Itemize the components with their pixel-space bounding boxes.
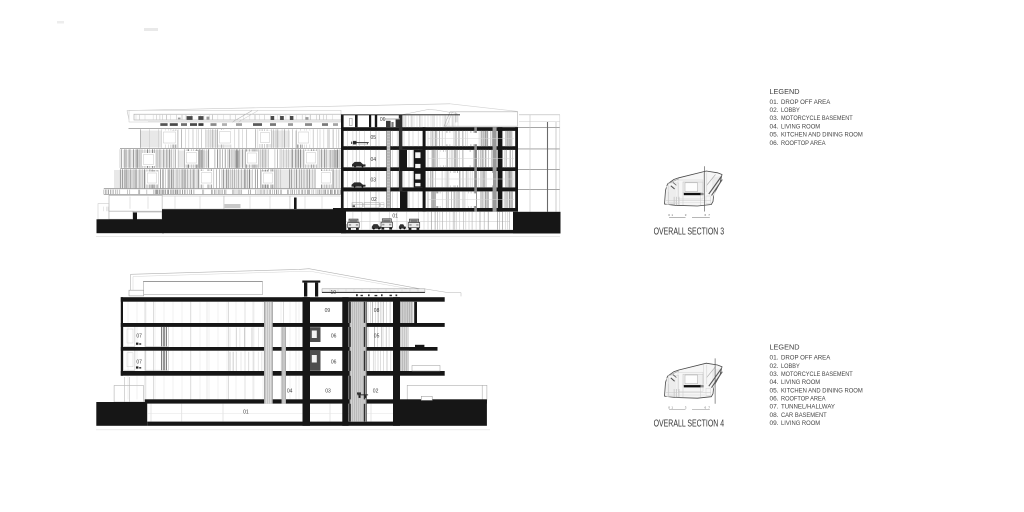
svg-text:OVERALL SECTION 4: OVERALL SECTION 4	[654, 419, 725, 430]
svg-text:03: 03	[325, 388, 331, 394]
svg-text:01.: 01.	[770, 99, 779, 106]
svg-text:02.: 02.	[770, 363, 779, 370]
svg-text:06: 06	[331, 333, 337, 339]
svg-text:ROOFTOP AREA: ROOFTOP AREA	[781, 395, 826, 402]
svg-text:CAR BASEMENT: CAR BASEMENT	[781, 412, 827, 419]
svg-text:08: 08	[374, 308, 380, 314]
svg-text:OVERALL SECTION 3: OVERALL SECTION 3	[654, 227, 725, 238]
svg-text:MOTORCYCLE BASEMENT: MOTORCYCLE BASEMENT	[781, 115, 853, 122]
svg-text:LEGEND: LEGEND	[770, 343, 800, 352]
svg-text:01: 01	[243, 409, 249, 415]
svg-text:DROP OFF AREA: DROP OFF AREA	[781, 99, 831, 106]
svg-text:04: 04	[371, 157, 377, 163]
svg-text:03.: 03.	[770, 371, 779, 378]
svg-text:05: 05	[371, 135, 377, 141]
svg-text:02.: 02.	[770, 107, 779, 114]
svg-text:LIVING ROOM: LIVING ROOM	[781, 123, 820, 130]
svg-text:05.: 05.	[770, 387, 779, 394]
svg-text:06: 06	[331, 360, 337, 366]
svg-text:09.: 09.	[770, 420, 779, 427]
svg-text:ROOFTOP AREA: ROOFTOP AREA	[781, 140, 826, 147]
svg-text:10: 10	[331, 290, 337, 296]
svg-text:LIVING ROOM: LIVING ROOM	[781, 420, 820, 427]
svg-text:KITCHEN AND DINING ROOM: KITCHEN AND DINING ROOM	[781, 132, 863, 139]
svg-text:03: 03	[371, 178, 377, 184]
svg-text:03.: 03.	[770, 115, 779, 122]
svg-text:TUNNEL/HALLWAY: TUNNEL/HALLWAY	[781, 404, 836, 411]
svg-text:LOBBY: LOBBY	[781, 363, 800, 370]
svg-text:06.: 06.	[770, 140, 779, 147]
svg-text:KITCHEN AND DINING ROOM: KITCHEN AND DINING ROOM	[781, 387, 863, 394]
svg-text:MOTORCYCLE BASEMENT: MOTORCYCLE BASEMENT	[781, 371, 853, 378]
svg-text:LEGEND: LEGEND	[770, 87, 800, 96]
svg-text:04.: 04.	[770, 379, 779, 386]
svg-text:07: 07	[136, 333, 142, 339]
svg-text:07.: 07.	[770, 404, 779, 411]
svg-text:01: 01	[392, 213, 398, 219]
svg-text:06: 06	[380, 117, 386, 123]
svg-text:01.: 01.	[770, 355, 779, 362]
svg-text:DROP OFF AREA: DROP OFF AREA	[781, 355, 831, 362]
svg-text:08.: 08.	[770, 412, 779, 419]
svg-text:02: 02	[373, 388, 379, 394]
svg-text:09: 09	[325, 308, 331, 314]
svg-text:05: 05	[374, 333, 380, 339]
svg-text:04.: 04.	[770, 123, 779, 130]
svg-text:06.: 06.	[770, 395, 779, 402]
svg-text:LIVING ROOM: LIVING ROOM	[781, 379, 820, 386]
svg-text:02: 02	[371, 197, 377, 203]
svg-text:07: 07	[136, 359, 142, 365]
svg-text:LOBBY: LOBBY	[781, 107, 800, 114]
svg-text:05.: 05.	[770, 132, 779, 139]
svg-text:04: 04	[287, 388, 293, 394]
